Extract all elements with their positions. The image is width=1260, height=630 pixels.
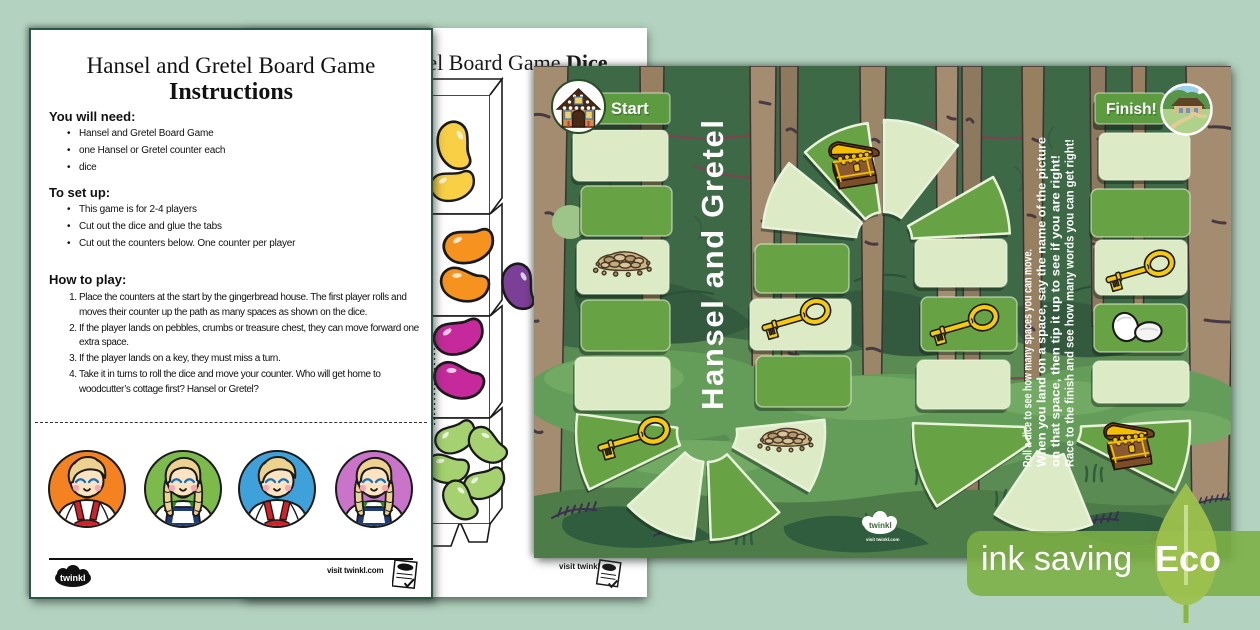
svg-text:twinkl: twinkl <box>60 573 86 583</box>
svg-text:When you land on a space, say: When you land on a space, say the name o… <box>1037 137 1049 467</box>
svg-text:Roll a dice to see how many sp: Roll a dice to see how many spaces you c… <box>1023 249 1035 467</box>
svg-text:Finish!: Finish! <box>1106 101 1157 118</box>
svg-text:Hansel and Gretel: Hansel and Gretel <box>695 120 730 410</box>
svg-text:Start: Start <box>611 100 649 118</box>
svg-text:Race to the finish and see how: Race to the finish and see how many word… <box>1065 139 1077 467</box>
svg-text:visit twinkl.com: visit twinkl.com <box>866 537 900 542</box>
svg-text:twinkl: twinkl <box>869 521 892 530</box>
svg-text:on that space, then tip it up: on that space, then tip it up to see if … <box>1051 155 1063 467</box>
